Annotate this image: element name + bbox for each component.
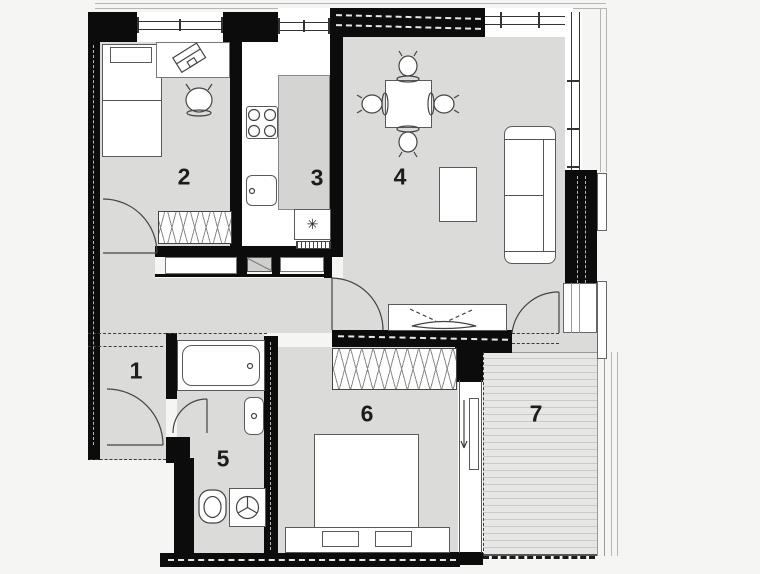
room-label-6: 6 (361, 401, 374, 428)
room-label-1: 1 (130, 358, 143, 385)
floor-plan: ✳ (0, 0, 760, 574)
room-label-2: 2 (178, 164, 191, 191)
sliding-door-arrow-icon (461, 400, 467, 448)
bathtub-drain-icon (248, 364, 253, 369)
shaft-diagonal-line (247, 258, 272, 271)
linework-overlay (0, 0, 760, 574)
laptop-icon (173, 43, 206, 72)
toilet-icon (199, 490, 226, 523)
room-label-7: 7 (530, 401, 543, 428)
shower-drain-icon (237, 497, 259, 519)
door-bathroom (173, 399, 207, 433)
dining-chair-icon (428, 93, 459, 115)
tv-icon (410, 309, 476, 329)
room-label-4: 4 (394, 164, 407, 191)
dining-chair-icon (397, 126, 419, 157)
door-entry (107, 389, 163, 445)
room-label-5: 5 (217, 446, 230, 473)
office-chair-icon (186, 84, 212, 116)
door-hall-living (332, 278, 383, 330)
cooktop-burners-icon (249, 110, 276, 137)
sink-faucet-icon (250, 189, 255, 194)
dining-chair-icon (397, 51, 419, 82)
sink-faucet-icon (252, 414, 257, 419)
room-label-3: 3 (311, 165, 324, 192)
door-room2 (103, 199, 157, 253)
door-living-terrace (512, 292, 559, 333)
dining-chair-icon (357, 93, 388, 115)
